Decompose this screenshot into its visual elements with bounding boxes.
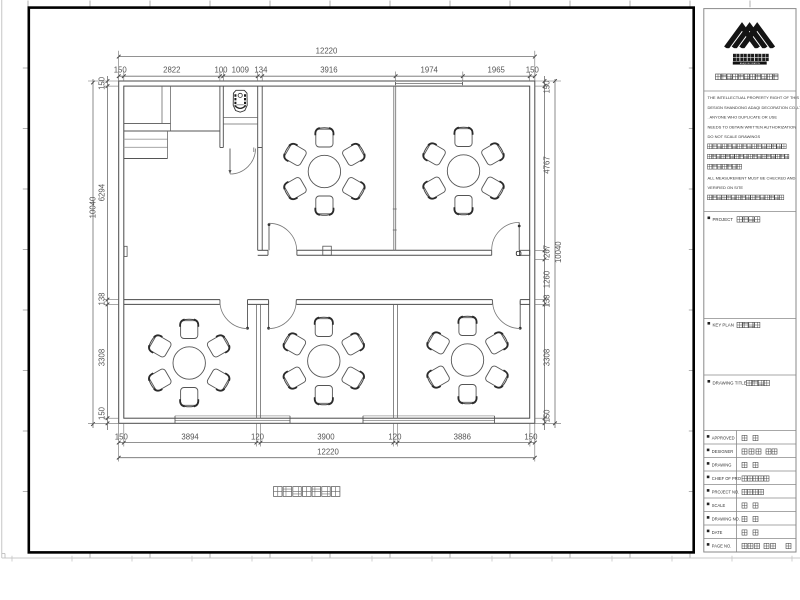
svg-text:DESIGN SHANDONG ADAQI DECORATI: DESIGN SHANDONG ADAQI DECORATION CO.,LTD: [708, 105, 800, 110]
svg-text:PROJECT: PROJECT: [713, 217, 734, 222]
svg-text:150: 150: [543, 409, 552, 423]
svg-text:3900: 3900: [317, 432, 335, 441]
svg-text:ALL MEASUREMENT MUST BE CHECKE: ALL MEASUREMENT MUST BE CHECKED AND: [708, 175, 796, 180]
svg-text:. ANYONE WHO DUPLICATE OR USE: . ANYONE WHO DUPLICATE OR USE: [708, 115, 778, 120]
svg-text:PROJECT NO.: PROJECT NO.: [712, 490, 739, 495]
svg-text:138: 138: [98, 292, 107, 305]
svg-text:150: 150: [115, 432, 129, 441]
svg-text:150: 150: [98, 76, 107, 90]
svg-text:138: 138: [543, 294, 552, 307]
svg-text:DATE: DATE: [712, 530, 723, 535]
svg-text:10040: 10040: [554, 241, 563, 263]
svg-text:KEY PLAN: KEY PLAN: [713, 323, 734, 328]
svg-text:4767: 4767: [543, 156, 552, 173]
svg-text:150: 150: [526, 65, 540, 74]
svg-text:150: 150: [524, 432, 538, 441]
svg-text:DRAWING NO.: DRAWING NO.: [712, 517, 740, 522]
svg-text:1974: 1974: [421, 65, 439, 74]
svg-text:3308: 3308: [98, 349, 107, 366]
svg-text:THE INTELLECTUAL PROPERTY RIGH: THE INTELLECTUAL PROPERTY RIGHT OF THIS: [708, 95, 800, 100]
svg-text:NEEDS TO OBTAIN WRITTEN AUTHOR: NEEDS TO OBTAIN WRITTEN AUTHORIZATION: [708, 124, 797, 129]
svg-text:DRAWING: DRAWING: [712, 463, 732, 468]
svg-text:2822: 2822: [163, 65, 180, 74]
svg-text:DO NOT SCALE DRAWINGS: DO NOT SCALE DRAWINGS: [708, 134, 761, 139]
svg-text:1009: 1009: [232, 65, 249, 74]
svg-text:ADAQI DECORATION: ADAQI DECORATION: [740, 62, 761, 65]
svg-text:12220: 12220: [317, 448, 339, 457]
svg-text:3894: 3894: [181, 432, 199, 441]
svg-text:1260: 1260: [543, 270, 552, 288]
svg-text:100: 100: [214, 65, 228, 74]
svg-text:3886: 3886: [454, 432, 471, 441]
svg-text:10040: 10040: [89, 196, 98, 218]
svg-text:267: 267: [543, 245, 552, 258]
svg-text:120: 120: [251, 432, 265, 441]
svg-text:3308: 3308: [543, 349, 552, 366]
svg-text:PAGE NO.: PAGE NO.: [712, 544, 732, 549]
svg-text:120: 120: [388, 432, 402, 441]
svg-text:12220: 12220: [316, 46, 338, 55]
svg-text:150: 150: [114, 65, 128, 74]
svg-text:134: 134: [254, 65, 268, 74]
svg-text:DRAWING TITLE: DRAWING TITLE: [713, 381, 747, 386]
svg-text:3916: 3916: [320, 65, 337, 74]
svg-text:1965: 1965: [488, 65, 506, 74]
svg-text:150: 150: [543, 80, 552, 94]
svg-text:SCALE: SCALE: [712, 503, 726, 508]
svg-text:CHIEF OF PRO: CHIEF OF PRO: [712, 476, 741, 481]
svg-text:VERIFIED ON SITE: VERIFIED ON SITE: [708, 185, 744, 190]
svg-text:APPROVED: APPROVED: [712, 436, 735, 441]
svg-text:6294: 6294: [98, 183, 107, 201]
svg-text:DESIGNER: DESIGNER: [712, 449, 733, 454]
